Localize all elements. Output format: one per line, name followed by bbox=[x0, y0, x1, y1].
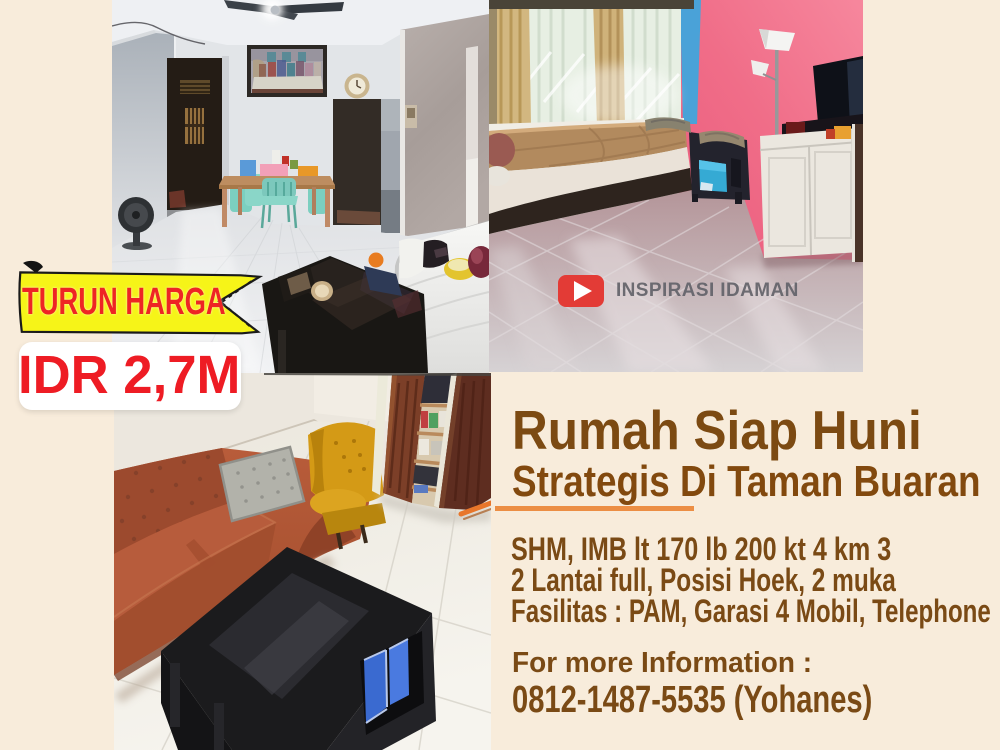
svg-text:INSPIRASI IDAMAN: INSPIRASI IDAMAN bbox=[616, 280, 799, 301]
